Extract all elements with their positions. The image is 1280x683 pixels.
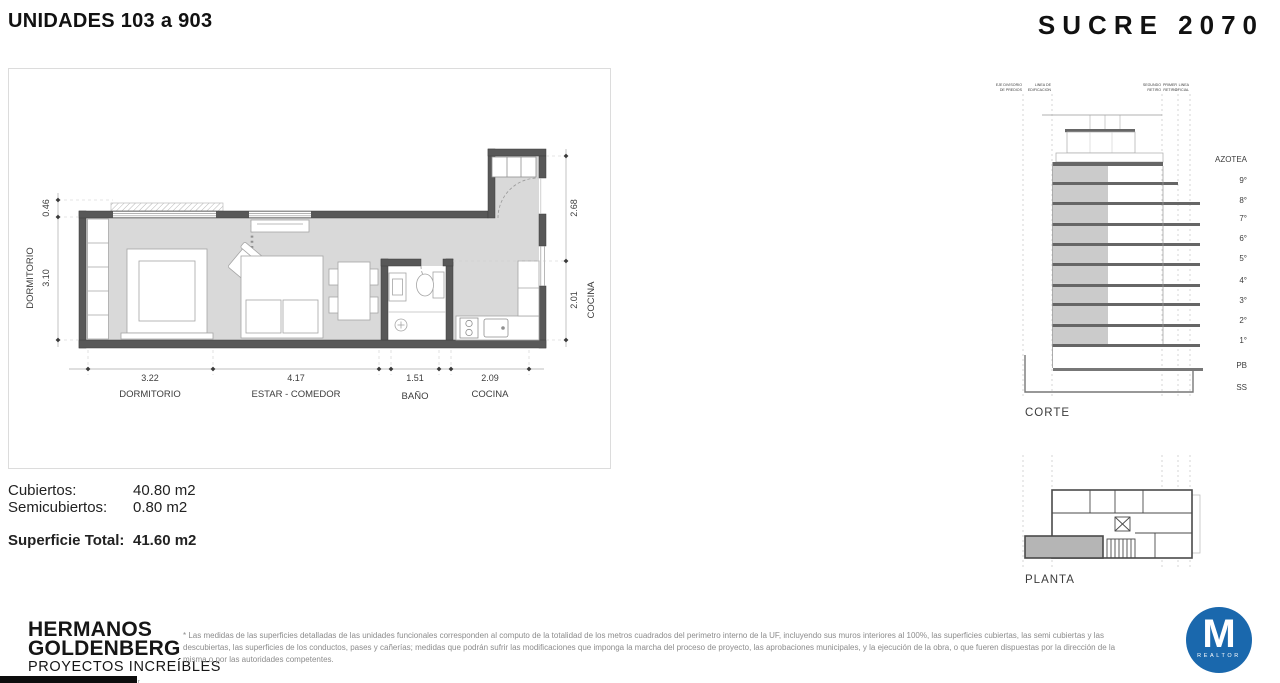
kitchen-sink	[484, 319, 508, 337]
surface-total-label: Superficie Total:	[8, 532, 133, 549]
ref-label: LINEA DE	[1035, 83, 1052, 87]
floor-label: 1°	[1239, 336, 1247, 345]
bedroom-wardrobe	[88, 219, 109, 339]
bed	[121, 249, 213, 339]
floor-labels: AZOTEA 9° 8° 7° 6° 5° 4° 3° 2° 1° PB SS	[1215, 155, 1248, 392]
dim-right-bottom: 2.01	[569, 291, 579, 309]
floor-label: SS	[1236, 383, 1247, 392]
living-window	[249, 212, 311, 218]
reference-labels: EJE DIVISORIO DE PREDIOS LINEA DE EDIFIC…	[996, 83, 1190, 92]
surface-label: Semicubiertos:	[8, 499, 133, 516]
realtor-badge: M REALTOR	[1186, 607, 1252, 673]
room-label-dormitorio: DORMITORIO	[119, 389, 181, 400]
dim-bottom-1-value: 3.22	[141, 373, 159, 383]
floor-label: PB	[1236, 361, 1247, 370]
surface-value: 40.80 m2	[133, 482, 196, 499]
tv-console	[251, 220, 309, 232]
side-label-dormitorio: DORMITORIO	[25, 247, 36, 309]
ref-label: EJE DIVISORIO	[996, 83, 1022, 87]
disclaimer-text: * Las medidas de las superficies detalla…	[183, 630, 1135, 666]
floor-label: 9°	[1239, 176, 1247, 185]
entry-closet	[492, 157, 536, 177]
ref-label: PRIMER	[1163, 83, 1177, 87]
bathroom-sink	[389, 273, 406, 301]
subsuelo-outline	[1025, 355, 1193, 392]
units-title: UNIDADES 103 a 903	[8, 10, 212, 33]
surface-total-row: Superficie Total: 41.60 m2	[8, 532, 196, 549]
dim-bottom-4-value: 2.09	[481, 373, 499, 383]
unit-highlight-plan	[1025, 536, 1103, 558]
kitchen-window	[541, 246, 545, 286]
ref-label: EDIFICACION	[1028, 88, 1052, 92]
dim-bottom-3-value: 1.51	[406, 373, 424, 383]
room-label-bano: BAÑO	[402, 391, 429, 402]
surface-total-value: 41.60 m2	[133, 532, 196, 549]
floor-label: 6°	[1239, 234, 1247, 243]
surface-row: Cubiertos: 40.80 m2	[8, 482, 196, 499]
realtor-label: REALTOR	[1186, 653, 1252, 659]
room-label-estar-comedor: ESTAR - COMEDOR	[251, 389, 340, 400]
corte-section: EJE DIVISORIO DE PREDIOS LINEA DE EDIFIC…	[995, 78, 1265, 428]
floor-plan-panel: 3.22 4.17 1.51 2.09 DORMITORIO ESTAR - C…	[8, 68, 611, 469]
floor-plan-svg: 3.22 4.17 1.51 2.09 DORMITORIO ESTAR - C…	[9, 69, 610, 468]
side-label-cocina: COCINA	[586, 281, 597, 319]
floor-label: 4°	[1239, 276, 1247, 285]
dim-left-top: 0.46	[41, 199, 51, 217]
floor-label: 5°	[1239, 254, 1247, 263]
logo-bar	[0, 676, 137, 683]
ref-label: SEGUNDO	[1143, 83, 1161, 87]
surface-row: Semicubiertos: 0.80 m2	[8, 499, 196, 516]
floor-label: AZOTEA	[1215, 155, 1248, 164]
ref-label: RETIRO	[1147, 88, 1161, 92]
floor-label: 8°	[1239, 196, 1247, 205]
ref-label: DE PREDIOS	[1000, 88, 1023, 92]
corte-svg: EJE DIVISORIO DE PREDIOS LINEA DE EDIFIC…	[995, 78, 1265, 423]
surface-label: Cubiertos:	[8, 482, 133, 499]
planta-title: PLANTA	[1025, 574, 1075, 586]
dim-right-top: 2.68	[569, 199, 579, 217]
kitchen-tall-unit	[518, 261, 539, 316]
planta-section: PLANTA	[995, 455, 1265, 595]
balcony-hatch	[111, 203, 223, 211]
ref-label: OFICIAL	[1175, 88, 1189, 92]
floor-label: 2°	[1239, 316, 1247, 325]
surface-value: 0.80 m2	[133, 499, 187, 516]
project-title: SUCRE 2070	[1038, 10, 1264, 41]
unit-highlight-band	[1053, 166, 1108, 345]
corte-title: CORTE	[1025, 407, 1070, 419]
pb-slab	[1053, 368, 1203, 371]
toilet	[417, 272, 445, 298]
dim-bottom-2-value: 4.17	[287, 373, 305, 383]
bedroom-window	[113, 212, 216, 218]
floor-label: 7°	[1239, 214, 1247, 223]
page: UNIDADES 103 a 903 SUCRE 2070	[0, 0, 1280, 683]
stove	[460, 318, 478, 338]
sofa	[241, 256, 323, 338]
room-label-cocina: COCINA	[472, 389, 510, 400]
surfaces-block: Cubiertos: 40.80 m2 Semicubiertos: 0.80 …	[8, 482, 196, 549]
planta-svg: PLANTA	[995, 455, 1265, 590]
ref-label: LINEA	[1179, 83, 1190, 87]
key-plan	[1025, 490, 1200, 558]
floor-label: 3°	[1239, 296, 1247, 305]
dim-left-main: 3.10	[41, 269, 51, 287]
realtor-m-logo: M	[1186, 609, 1252, 659]
